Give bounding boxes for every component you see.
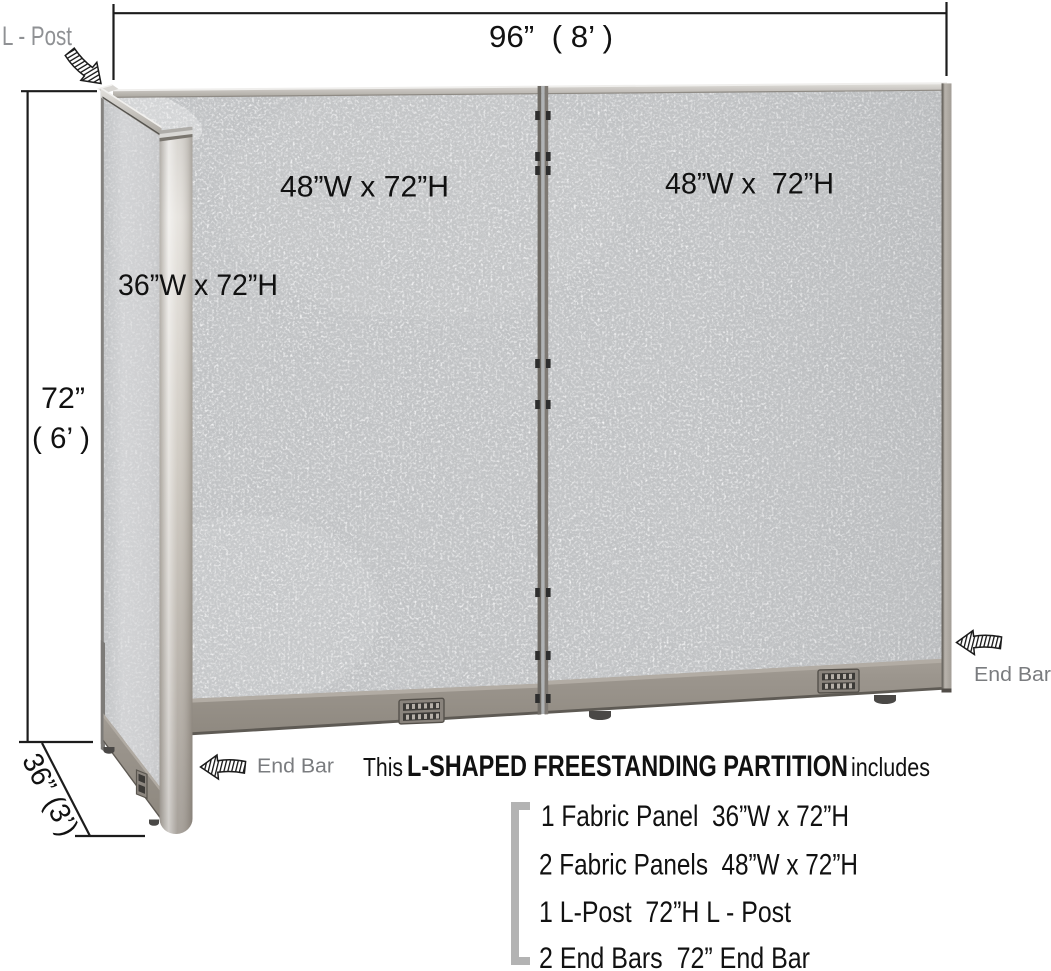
svg-text:L-SHAPED FREESTANDING PARTITIO: L-SHAPED FREESTANDING PARTITION	[407, 750, 848, 783]
svg-text:36”W x 72”H: 36”W x 72”H	[118, 269, 278, 302]
svg-text:End Bar: End Bar	[257, 756, 334, 778]
svg-text:L - Post: L - Post	[2, 21, 72, 51]
svg-text:48”W x 72”H: 48”W x 72”H	[280, 171, 449, 204]
svg-text:96” ( 8’ ): 96” ( 8’ )	[489, 19, 613, 54]
svg-text:36” (3’): 36” (3’)	[15, 748, 84, 841]
svg-text:2 Fabric Panels 48”W x 72”H: 2 Fabric Panels 48”W x 72”H	[539, 849, 858, 882]
svg-text:2 End Bars 72” End Bar: 2 End Bars 72” End Bar	[539, 942, 810, 971]
svg-text:includes: includes	[851, 752, 930, 782]
svg-text:1 L-Post 72”H L - Post: 1 L-Post 72”H L - Post	[539, 896, 792, 929]
svg-text:48”W x 72”H: 48”W x 72”H	[665, 168, 834, 201]
svg-text:( 6’ ): ( 6’ )	[32, 422, 90, 455]
svg-text:This: This	[363, 752, 403, 782]
svg-text:1 Fabric Panel 36”W x 72”H: 1 Fabric Panel 36”W x 72”H	[541, 800, 849, 833]
svg-text:72”: 72”	[41, 382, 85, 415]
svg-text:End Bar: End Bar	[974, 664, 1051, 686]
